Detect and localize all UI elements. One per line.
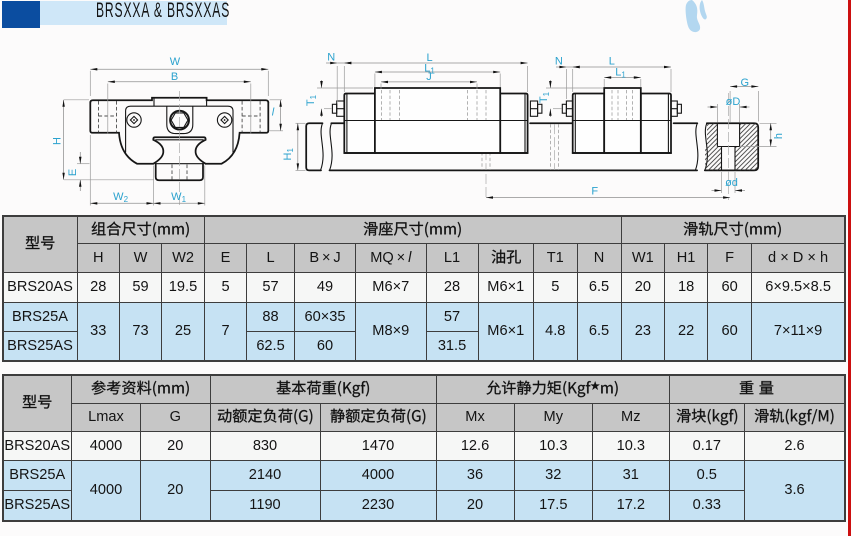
svg-text:l: l xyxy=(272,107,275,119)
svg-text:N: N xyxy=(555,55,563,67)
svg-text:ød: ød xyxy=(725,177,738,189)
svg-text:h: h xyxy=(773,133,785,139)
svg-text:L1: L1 xyxy=(615,66,626,79)
svg-text:L: L xyxy=(609,55,615,67)
svg-text:T1: T1 xyxy=(538,91,551,103)
svg-text:W1: W1 xyxy=(171,191,186,204)
svg-text:W2: W2 xyxy=(113,191,128,204)
svg-text:N: N xyxy=(327,52,335,64)
svg-text:T1: T1 xyxy=(305,94,318,106)
svg-text:E: E xyxy=(67,169,79,176)
svg-text:W: W xyxy=(170,56,181,68)
svg-text:B: B xyxy=(171,71,178,83)
svg-text:J: J xyxy=(426,71,432,83)
svg-text:H: H xyxy=(52,137,64,145)
svg-text:G: G xyxy=(741,77,750,89)
svg-text:F: F xyxy=(591,185,598,197)
svg-text:H1: H1 xyxy=(282,148,295,161)
svg-text:øD: øD xyxy=(726,96,741,108)
